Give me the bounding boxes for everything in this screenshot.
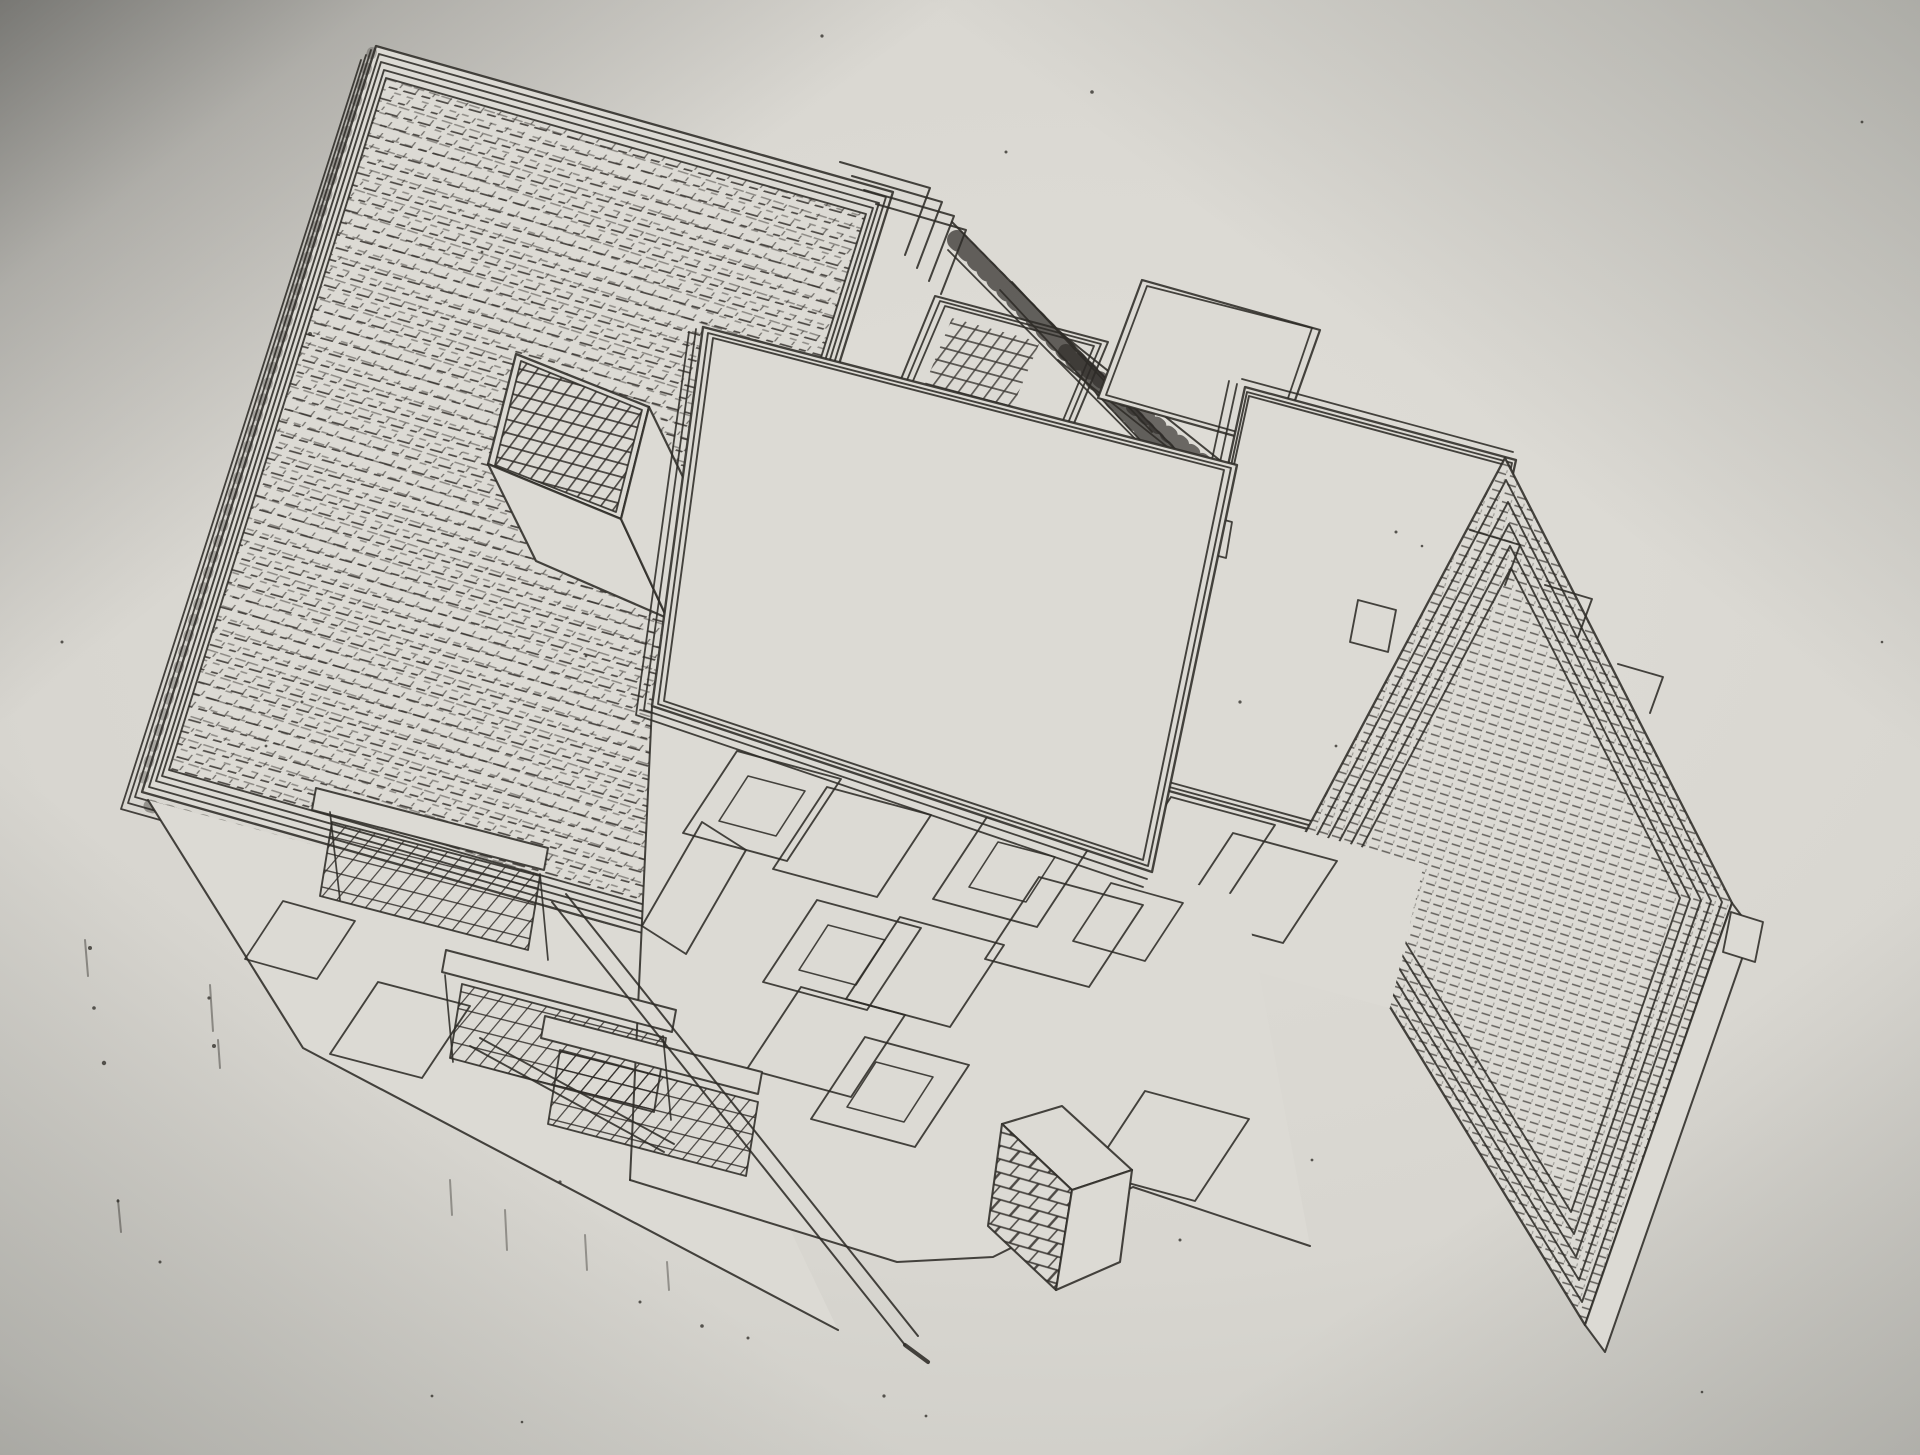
stair-foot	[905, 1345, 928, 1362]
architectural-drawing	[0, 0, 1920, 1455]
print-smudges	[85, 940, 220, 1232]
photographed-page	[0, 0, 1920, 1455]
